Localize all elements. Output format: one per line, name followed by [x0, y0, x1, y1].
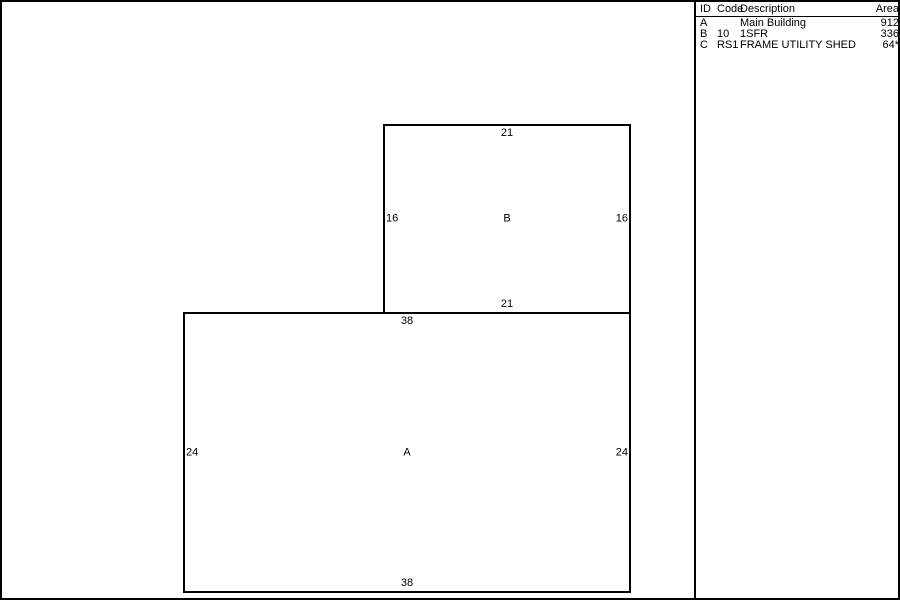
legend-cell-code: 10: [717, 29, 740, 40]
legend-row: C RS1 FRAME UTILITY SHED 64*: [696, 40, 900, 51]
building-b-dim-right: 16: [616, 214, 628, 225]
building-a-dim-top: 38: [401, 316, 413, 327]
sketch-viewer-window: 38 38 24 24 A 21 21 16 16 B ID Code Desc…: [0, 0, 900, 600]
legend-header-id: ID: [700, 4, 717, 16]
building-b-dim-bottom: 21: [501, 299, 513, 310]
building-b-outline: 21 21 16 16 B: [383, 124, 631, 314]
legend-cell-area: 912: [857, 18, 899, 29]
building-b-dim-left: 16: [386, 214, 398, 225]
panel-divider: [694, 2, 696, 600]
legend-cell-id: C: [700, 40, 717, 51]
legend-header-code: Code: [717, 4, 740, 16]
legend-cell-description: Main Building: [740, 18, 857, 29]
legend-cell-id: B: [700, 29, 717, 40]
building-a-outline: 38 38 24 24 A: [183, 312, 631, 593]
legend-cell-id: A: [700, 18, 717, 29]
sketch-canvas: 38 38 24 24 A 21 21 16 16 B: [2, 2, 694, 600]
legend-row: B 10 1SFR 336: [696, 29, 900, 40]
legend-cell-area: 336: [857, 29, 899, 40]
building-a-dim-left: 24: [186, 447, 198, 458]
legend-cell-description: FRAME UTILITY SHED: [740, 40, 857, 51]
building-a-dim-right: 24: [616, 447, 628, 458]
legend-cell-code: RS1: [717, 40, 740, 51]
legend-cell-area: 64*: [857, 40, 899, 51]
legend-header-description: Description: [740, 4, 857, 16]
building-a-dim-bottom: 38: [401, 578, 413, 589]
legend-cell-description: 1SFR: [740, 29, 857, 40]
legend-header-area: Area: [857, 4, 899, 16]
building-b-label: B: [503, 214, 510, 225]
legend-cell-code: [717, 18, 740, 29]
building-a-label: A: [403, 447, 410, 458]
legend-table: ID Code Description Area A Main Building…: [696, 4, 900, 51]
legend-row: A Main Building 912: [696, 18, 900, 29]
legend-header-row: ID Code Description Area: [696, 4, 900, 17]
building-b-dim-top: 21: [501, 128, 513, 139]
